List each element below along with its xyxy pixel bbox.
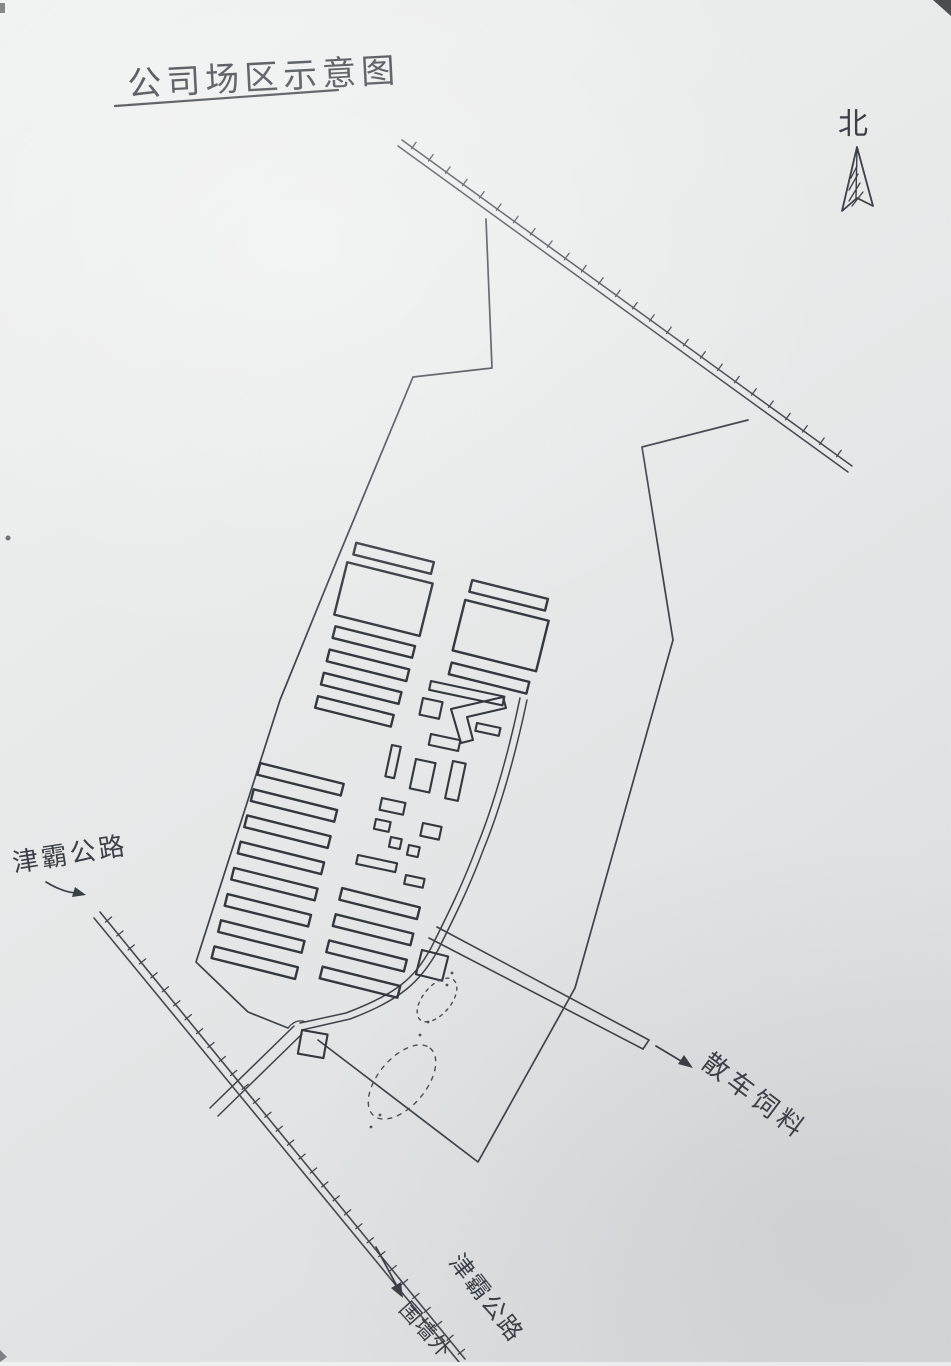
barn-row (339, 888, 420, 919)
internal-road (300, 698, 527, 1030)
small-building (380, 798, 406, 815)
barn-row (244, 815, 330, 847)
barn-row (238, 842, 324, 874)
highway-hatch-ticks (105, 917, 464, 1354)
north-label: 北 (838, 107, 868, 142)
ink-speck (6, 536, 11, 541)
barn-block-lower-left (212, 763, 344, 979)
pond-dashed (355, 1033, 448, 1131)
feed-chute (429, 927, 649, 1049)
small-building (404, 875, 424, 888)
small-building (420, 823, 441, 840)
page-title: 公司场区示意图 (126, 51, 401, 105)
highway-label-top: 津霸公路 (10, 831, 129, 879)
small-building (407, 845, 420, 857)
photo-edge-mark (0, 3, 5, 13)
small-building (389, 837, 402, 849)
bulk-feed-label: 散车饲料 (696, 1048, 813, 1147)
small-building (374, 819, 391, 832)
pond-dots (370, 972, 454, 1129)
arrowhead-icon (391, 1282, 403, 1298)
highway-line (94, 912, 465, 1362)
drawing-title-group: 公司场区示意图 (115, 51, 401, 106)
access-road (210, 1021, 306, 1116)
barn-row (257, 763, 343, 795)
small-building (419, 698, 442, 719)
highway-label-top-group: 津霸公路 (10, 831, 129, 897)
barn-row (326, 940, 407, 971)
barn-row (231, 868, 317, 900)
highway-label-bottom-group: 津霸公路 围墙外 (376, 1247, 529, 1362)
barn-row (251, 789, 337, 821)
highway-arrow-top (46, 882, 86, 897)
barn-row (212, 946, 298, 978)
site-plan-drawing: 公司场区示意图 北 (0, 0, 951, 1362)
barn-row (469, 580, 548, 611)
small-building (410, 759, 436, 793)
barn-row (353, 543, 434, 574)
utility-buildings (298, 681, 506, 1058)
arrowhead-icon (678, 1055, 693, 1068)
ponds (355, 971, 464, 1131)
north-compass: 北 (838, 107, 873, 211)
small-building (385, 745, 400, 778)
highway-label-bottom: 津霸公路 (443, 1248, 529, 1347)
small-building (356, 855, 397, 872)
big-building (453, 600, 549, 671)
small-building (429, 734, 461, 751)
photographed-sketch-page: { "colors": { "paper_light": "#eef0f0", … (0, 0, 951, 1362)
barn-row (225, 894, 311, 926)
railway-hatch-ticks (411, 142, 841, 457)
barn-block-upper-right (447, 580, 554, 695)
wall-note-label: 围墙外 (394, 1297, 456, 1362)
barn-block-upper-left (311, 542, 438, 728)
small-building (475, 723, 500, 736)
photo-corner-mark (933, 0, 951, 16)
feed-arrow (656, 1046, 693, 1068)
railway-line (398, 140, 852, 472)
big-building (334, 562, 432, 636)
arrowhead-icon (72, 887, 86, 897)
photo-corner-mark (0, 1350, 7, 1362)
barn-row (218, 920, 304, 952)
barn-row (333, 914, 414, 945)
highway-arrow-bottom (376, 1247, 403, 1298)
small-building (445, 761, 466, 801)
